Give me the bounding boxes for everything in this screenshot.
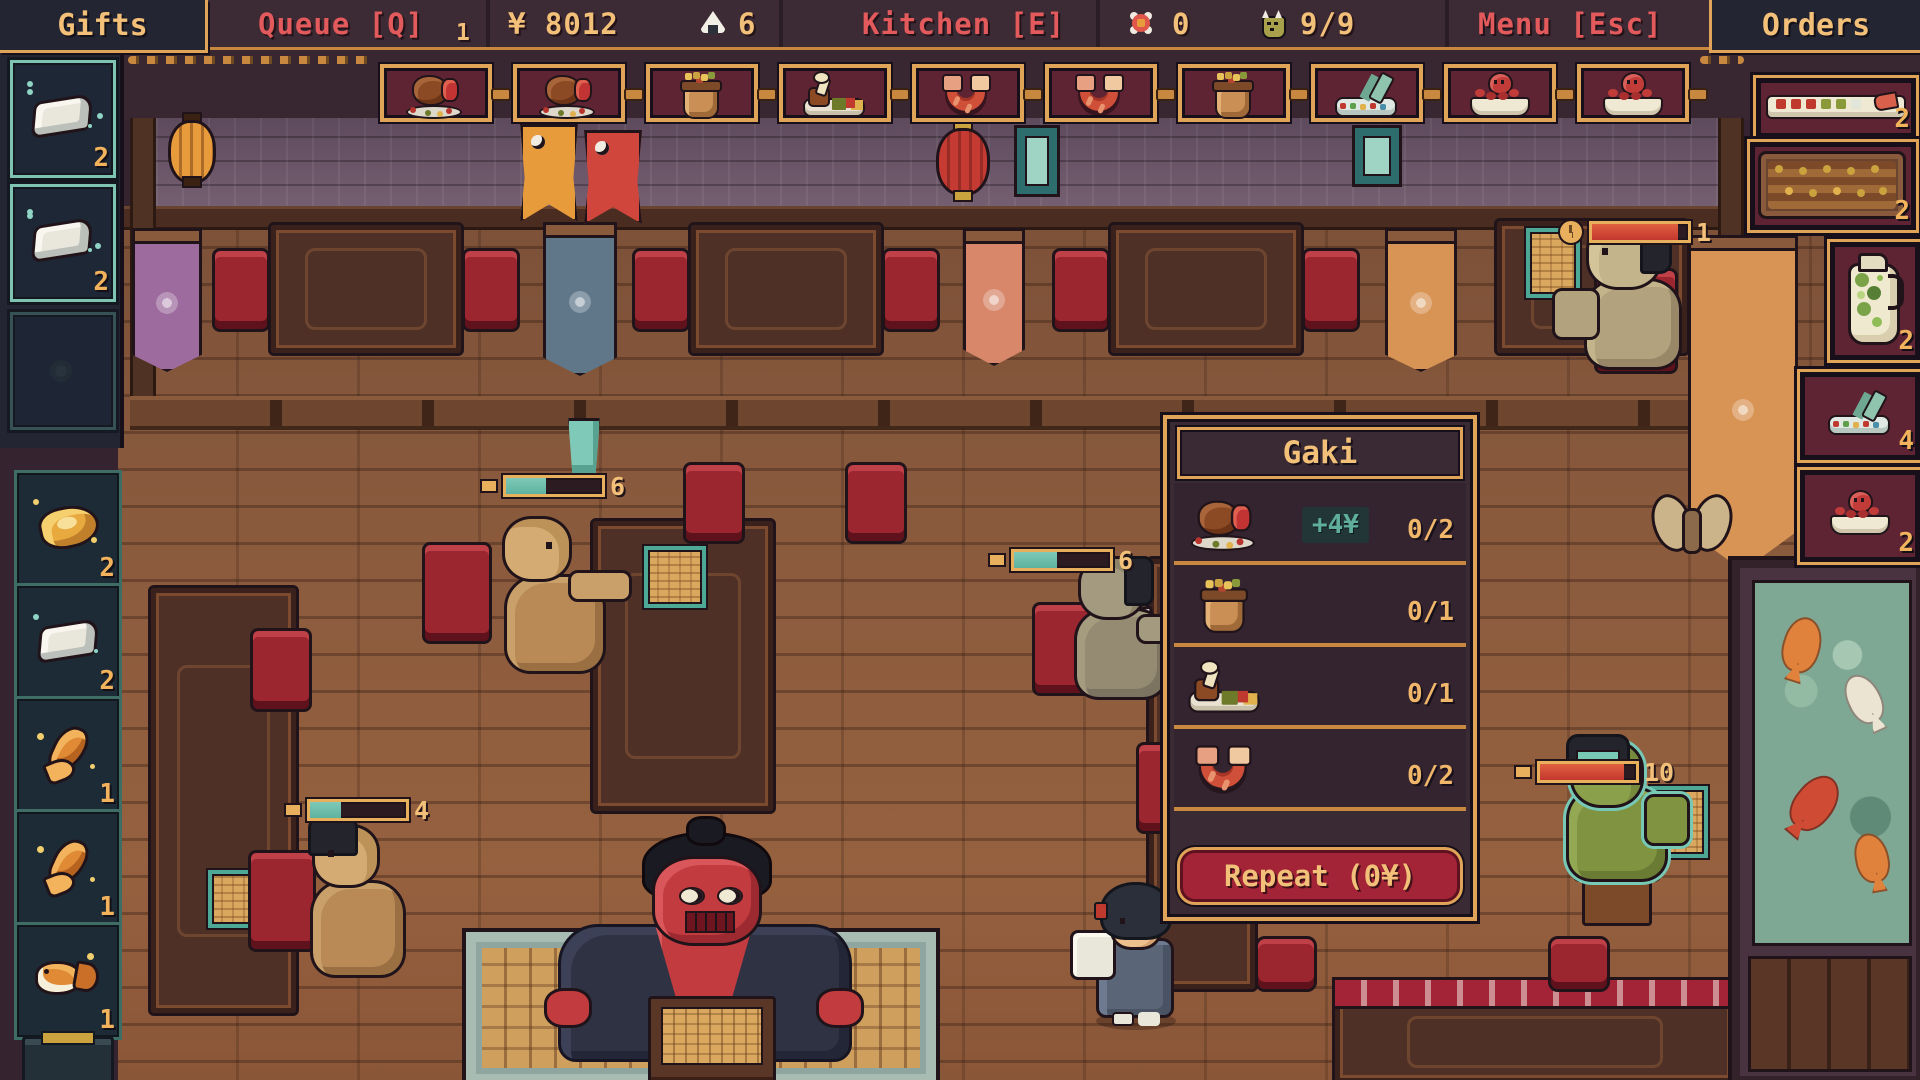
chair (1302, 248, 1360, 332)
hud-divider (1096, 0, 1100, 47)
hanging-chain (1700, 56, 1744, 64)
order-row[interactable]: 0/2 (1174, 729, 1466, 811)
koi-tail-icon (31, 723, 103, 781)
prize-stand: 2 2 1 1 1 (14, 470, 116, 1080)
queue-dish-card[interactable] (777, 62, 893, 124)
prize-count: 1 (99, 779, 115, 809)
queue-hotkey-label[interactable]: Queue [Q] (258, 7, 424, 41)
money-value: ¥ 8012 (508, 7, 619, 41)
queue-dish-card[interactable] (511, 62, 627, 124)
dining-table (268, 222, 464, 356)
patience-bar: 4 (284, 798, 429, 822)
clay-pot-icon (1200, 72, 1264, 120)
clay-pot-icon (668, 72, 732, 120)
drumstick-plate-icon (801, 72, 865, 120)
queue-dish-card[interactable] (1043, 62, 1159, 124)
queue-dish-card[interactable] (1575, 62, 1691, 124)
chair (212, 248, 270, 332)
stand-base (22, 1036, 114, 1080)
chair (250, 628, 312, 712)
order-card[interactable]: 2 (1750, 142, 1916, 230)
orders-button[interactable]: Orders (1709, 0, 1920, 53)
queue-dish-card[interactable] (910, 62, 1026, 124)
repeat-order-button[interactable]: Repeat (0¥) (1177, 847, 1463, 905)
moth-decoration (1648, 486, 1732, 570)
stool (1548, 936, 1610, 992)
queue-dish-card[interactable] (378, 62, 494, 124)
roast-turkey-icon (535, 72, 599, 120)
prize-slot[interactable]: 1 (14, 922, 122, 1040)
chair (882, 248, 940, 332)
top-hud-bar: Queue [Q] ¥ 8012 6 Kitchen [E] 0 9/9 Men… (0, 0, 1920, 50)
patience-value: 6 (610, 472, 625, 501)
chair (683, 462, 745, 544)
pond-water (1752, 580, 1912, 946)
stool (1255, 936, 1317, 992)
order-progress: 0/2 (1407, 761, 1454, 791)
sashimi-plate-icon (1333, 72, 1397, 120)
hud-divider (1445, 0, 1449, 47)
clay-pot-icon (1186, 579, 1260, 634)
oni-chef[interactable] (552, 832, 852, 1080)
sashimi-plate-icon (1826, 390, 1890, 438)
fried-shrimp-icon (1186, 743, 1260, 798)
chef-desk (648, 996, 776, 1080)
prize-slot[interactable]: 1 (14, 696, 122, 814)
koi-tail-icon (31, 836, 103, 894)
blossom-icon (1128, 10, 1154, 36)
chair (462, 248, 520, 332)
prize-count: 2 (99, 553, 115, 583)
order-card[interactable]: 2 (1756, 78, 1916, 138)
order-count: 2 (1894, 196, 1910, 226)
silver-wedge-icon (31, 610, 103, 668)
octopus-dish-icon (1466, 72, 1530, 120)
clock-icon (1558, 219, 1584, 245)
banner-purple (132, 228, 202, 372)
gift-slot[interactable]: 2 (10, 60, 116, 178)
fried-shrimp-icon (1067, 72, 1131, 120)
rice-ball-count: 6 (738, 7, 756, 41)
chopstick-icon (480, 479, 498, 493)
order-count: 4 (1898, 426, 1914, 456)
bottom-right-table (1332, 998, 1738, 1080)
gift-count: 2 (93, 143, 109, 173)
kitchen-hotkey-label[interactable]: Kitchen [E] (862, 7, 1065, 41)
game-screen: 6 6 4 10 1 (0, 0, 1920, 1080)
goldfish-icon (31, 949, 103, 1007)
chopstick-icon (284, 803, 302, 817)
sushi-platter-icon (1766, 90, 1906, 124)
prize-count: 2 (99, 666, 115, 696)
roast-turkey-icon (1186, 497, 1260, 552)
queue-dish-card[interactable] (1176, 62, 1292, 124)
blossom-count: 0 (1172, 7, 1190, 41)
hud-divider (486, 0, 490, 47)
fried-shrimp-icon (934, 72, 998, 120)
order-progress: 0/1 (1407, 679, 1454, 709)
order-count: 2 (1894, 104, 1910, 134)
patience-bar: 10 (1514, 760, 1674, 784)
floor-railing (130, 396, 1742, 430)
mask-count: 9/9 (1300, 7, 1355, 41)
customer-name-title: Gaki (1177, 427, 1463, 479)
red-lantern (934, 120, 988, 202)
menu-card (644, 546, 706, 608)
octopus-dish-icon (1599, 72, 1663, 120)
patience-bar: 6 (480, 474, 625, 498)
chair (1052, 248, 1110, 332)
hud-divider (779, 0, 783, 47)
pond-cabinet (1748, 956, 1912, 1072)
banner-orange (1385, 228, 1457, 372)
patience-bar: 1 (1558, 220, 1711, 244)
gold-loaf-icon (31, 497, 103, 555)
dining-table (1108, 222, 1304, 356)
order-progress: 0/2 (1407, 515, 1454, 545)
skewer-tray-icon (1757, 150, 1907, 220)
drumstick-plate-icon (1186, 661, 1260, 716)
chopstick-icon (988, 553, 1006, 567)
order-card[interactable]: 2 (1800, 470, 1920, 562)
red-cloth (1332, 977, 1738, 1009)
chair (632, 248, 690, 332)
menu-hotkey-label[interactable]: Menu [Esc] (1478, 7, 1663, 41)
chair (845, 462, 907, 544)
serving-plate (1070, 930, 1116, 980)
roast-turkey-icon (402, 72, 466, 120)
hair-clip (1094, 902, 1108, 920)
patience-bar: 6 (988, 548, 1133, 572)
queue-dish-card[interactable] (644, 62, 760, 124)
order-count: 2 (1898, 326, 1914, 356)
patience-value: 4 (414, 796, 429, 825)
prize-count: 1 (99, 1005, 115, 1035)
orange-lantern (166, 112, 214, 188)
prize-slot[interactable]: 1 (14, 809, 122, 927)
prize-count: 1 (99, 892, 115, 922)
prize-slot[interactable]: 2 (14, 583, 122, 701)
gifts-button[interactable]: Gifts (0, 0, 208, 53)
teal-lantern-box (1352, 125, 1402, 187)
gift-count: 2 (93, 267, 109, 297)
chopstick-icon (1514, 765, 1532, 779)
silver-wedge-icon (25, 85, 97, 143)
customer-bottom-left[interactable] (248, 806, 408, 986)
order-card[interactable]: 2 (1830, 242, 1920, 360)
order-card[interactable]: 4 (1800, 372, 1920, 460)
patience-value: 1 (1696, 218, 1711, 247)
order-row[interactable]: +4¥ 0/2 (1174, 483, 1466, 565)
koi-pond (1728, 556, 1920, 1080)
patience-value: 6 (1118, 546, 1133, 575)
dining-table (688, 222, 884, 356)
order-progress: 0/1 (1407, 597, 1454, 627)
gift-slot-empty[interactable] (10, 312, 116, 430)
order-row[interactable]: 0/1 (1174, 565, 1466, 647)
teal-mask-banner (1014, 125, 1060, 197)
order-count: 2 (1898, 528, 1914, 558)
patience-value: 10 (1644, 758, 1674, 787)
customer-orc[interactable] (418, 512, 628, 692)
octopus-dish-icon (1826, 490, 1890, 538)
gifts-panel: 2 2 (0, 50, 124, 448)
queue-dish-card[interactable] (1309, 62, 1425, 124)
prize-slot[interactable]: 2 (14, 470, 122, 588)
queue-dish-card[interactable] (1442, 62, 1558, 124)
hanging-chain (128, 56, 374, 64)
sake-pitcher-icon (1840, 250, 1904, 350)
bonus-badge: +4¥ (1302, 507, 1369, 543)
empty-slot-icon (25, 337, 97, 395)
queue-count-badge: 1 (456, 20, 470, 46)
silver-wedge-icon (25, 209, 97, 267)
banner-salmon (963, 228, 1025, 366)
gift-slot[interactable]: 2 (10, 184, 116, 302)
banner-blue (543, 222, 617, 376)
order-row[interactable]: 0/1 (1174, 647, 1466, 729)
rice-ball-icon (700, 11, 726, 35)
customer-order-panel: Gaki +4¥ 0/2 0/1 0/1 0/2 Re (1163, 415, 1477, 921)
oni-mask-icon (1258, 9, 1286, 37)
